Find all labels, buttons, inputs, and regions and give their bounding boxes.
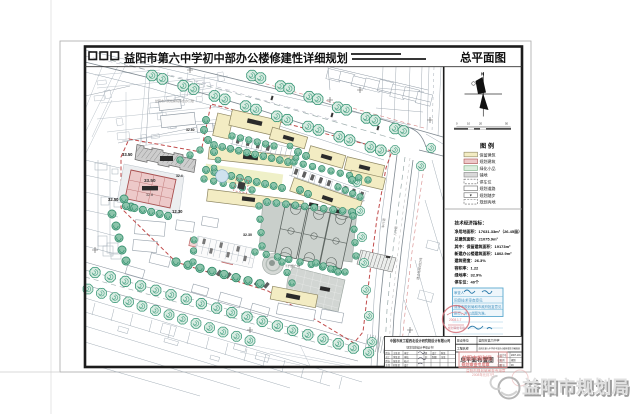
svg-text:益阳市人民检察院综合办公楼: 益阳市人民检察院综合办公楼 — [155, 98, 194, 103]
svg-text:审查人: 审查人 — [454, 290, 465, 295]
svg-text:20: 20 — [479, 122, 483, 126]
svg-text:益阳市规划局: 益阳市规划局 — [462, 355, 492, 362]
svg-text:同意技术审查意见: 同意技术审查意见 — [454, 298, 483, 303]
svg-text:新建办公楼建筑面积：1802.9m²: 新建办公楼建筑面积：1802.9m² — [455, 250, 513, 256]
svg-text:审查: 审查 — [497, 355, 503, 359]
svg-text:绿化小品: 绿化小品 — [480, 165, 496, 171]
svg-text:益阳市第六中学: 益阳市第六中学 — [479, 338, 500, 343]
svg-text:2007-101: 2007-101 — [511, 355, 521, 357]
svg-text:净用地面积：17631.33m²（26.45亩）: 净用地面积：17631.33m²（26.45亩） — [455, 228, 523, 234]
svg-text:铺地: 铺地 — [480, 172, 488, 178]
svg-text:益阳市规划局: 益阳市规划局 — [522, 377, 629, 397]
svg-text:10: 10 — [467, 122, 471, 126]
svg-text:规划审查专用章: 规划审查专用章 — [461, 361, 490, 367]
svg-text:建筑密度：26.3%: 建筑密度：26.3% — [455, 257, 487, 263]
svg-text:其中：保留建筑面积：19173m²: 其中：保留建筑面积：19173m² — [455, 243, 512, 249]
svg-text:12.30: 12.30 — [172, 209, 183, 214]
svg-text:2008年元月7日: 2008年元月7日 — [472, 372, 494, 377]
svg-text:33.50: 33.50 — [122, 152, 133, 157]
svg-text:32.8: 32.8 — [146, 193, 153, 197]
svg-text:工程名称: 工程名称 — [457, 345, 469, 350]
svg-text:32.4: 32.4 — [176, 174, 183, 178]
svg-text:（城市规划设计甲级证书）: （城市规划设计甲级证书） — [404, 346, 435, 350]
svg-text:技术经济指标：: 技术经济指标： — [455, 220, 487, 227]
svg-text:规划建筑: 规划建筑 — [480, 158, 496, 164]
svg-text:绿地率：32.9%: 绿地率：32.9% — [455, 271, 483, 277]
svg-text:意见: 意见 — [497, 364, 503, 368]
svg-text:保留建筑: 保留建筑 — [480, 151, 496, 157]
svg-text:专用: 专用 — [497, 359, 503, 363]
svg-text:建设单位: 建设单位 — [457, 338, 469, 343]
svg-text:中国市政工程西北设计研究院设计有限公司: 中国市政工程西北设计研究院设计有限公司 — [390, 338, 451, 343]
svg-text:规划审批专用: 规划审批专用 — [448, 326, 465, 330]
svg-text:规划丙地: 规划丙地 — [480, 199, 496, 205]
svg-text:50: 50 — [505, 122, 509, 126]
svg-text:停车位: 停车位 — [480, 178, 492, 184]
svg-text:总平面图: 总平面图 — [460, 51, 506, 65]
svg-text:32.60: 32.60 — [186, 128, 195, 132]
svg-text:2008.1.7: 2008.1.7 — [449, 318, 462, 322]
svg-text:容积率：1.22: 容积率：1.22 — [454, 264, 480, 270]
svg-text:33.50: 33.50 — [144, 178, 156, 183]
svg-text:执行，并以此图为准。: 执行，并以此图为准。 — [454, 311, 488, 316]
svg-text:32.50: 32.50 — [108, 197, 119, 202]
svg-text:停车位：40个: 停车位：40个 — [455, 279, 480, 285]
svg-text:32.30: 32.30 — [243, 233, 252, 237]
svg-text:▼: ▼ — [469, 194, 473, 198]
svg-text:规划道路: 规划道路 — [480, 185, 496, 191]
svg-text:总建筑面积：21075.9m²: 总建筑面积：21075.9m² — [455, 236, 499, 242]
svg-text:图 例: 图 例 — [480, 142, 494, 150]
svg-text:益阳市第六中学初中部办公楼修建性详细规划: 益阳市第六中学初中部办公楼修建性详细规划 — [124, 51, 348, 65]
svg-text:N: N — [481, 72, 484, 77]
svg-text:规划踏步: 规划踏步 — [480, 192, 496, 198]
